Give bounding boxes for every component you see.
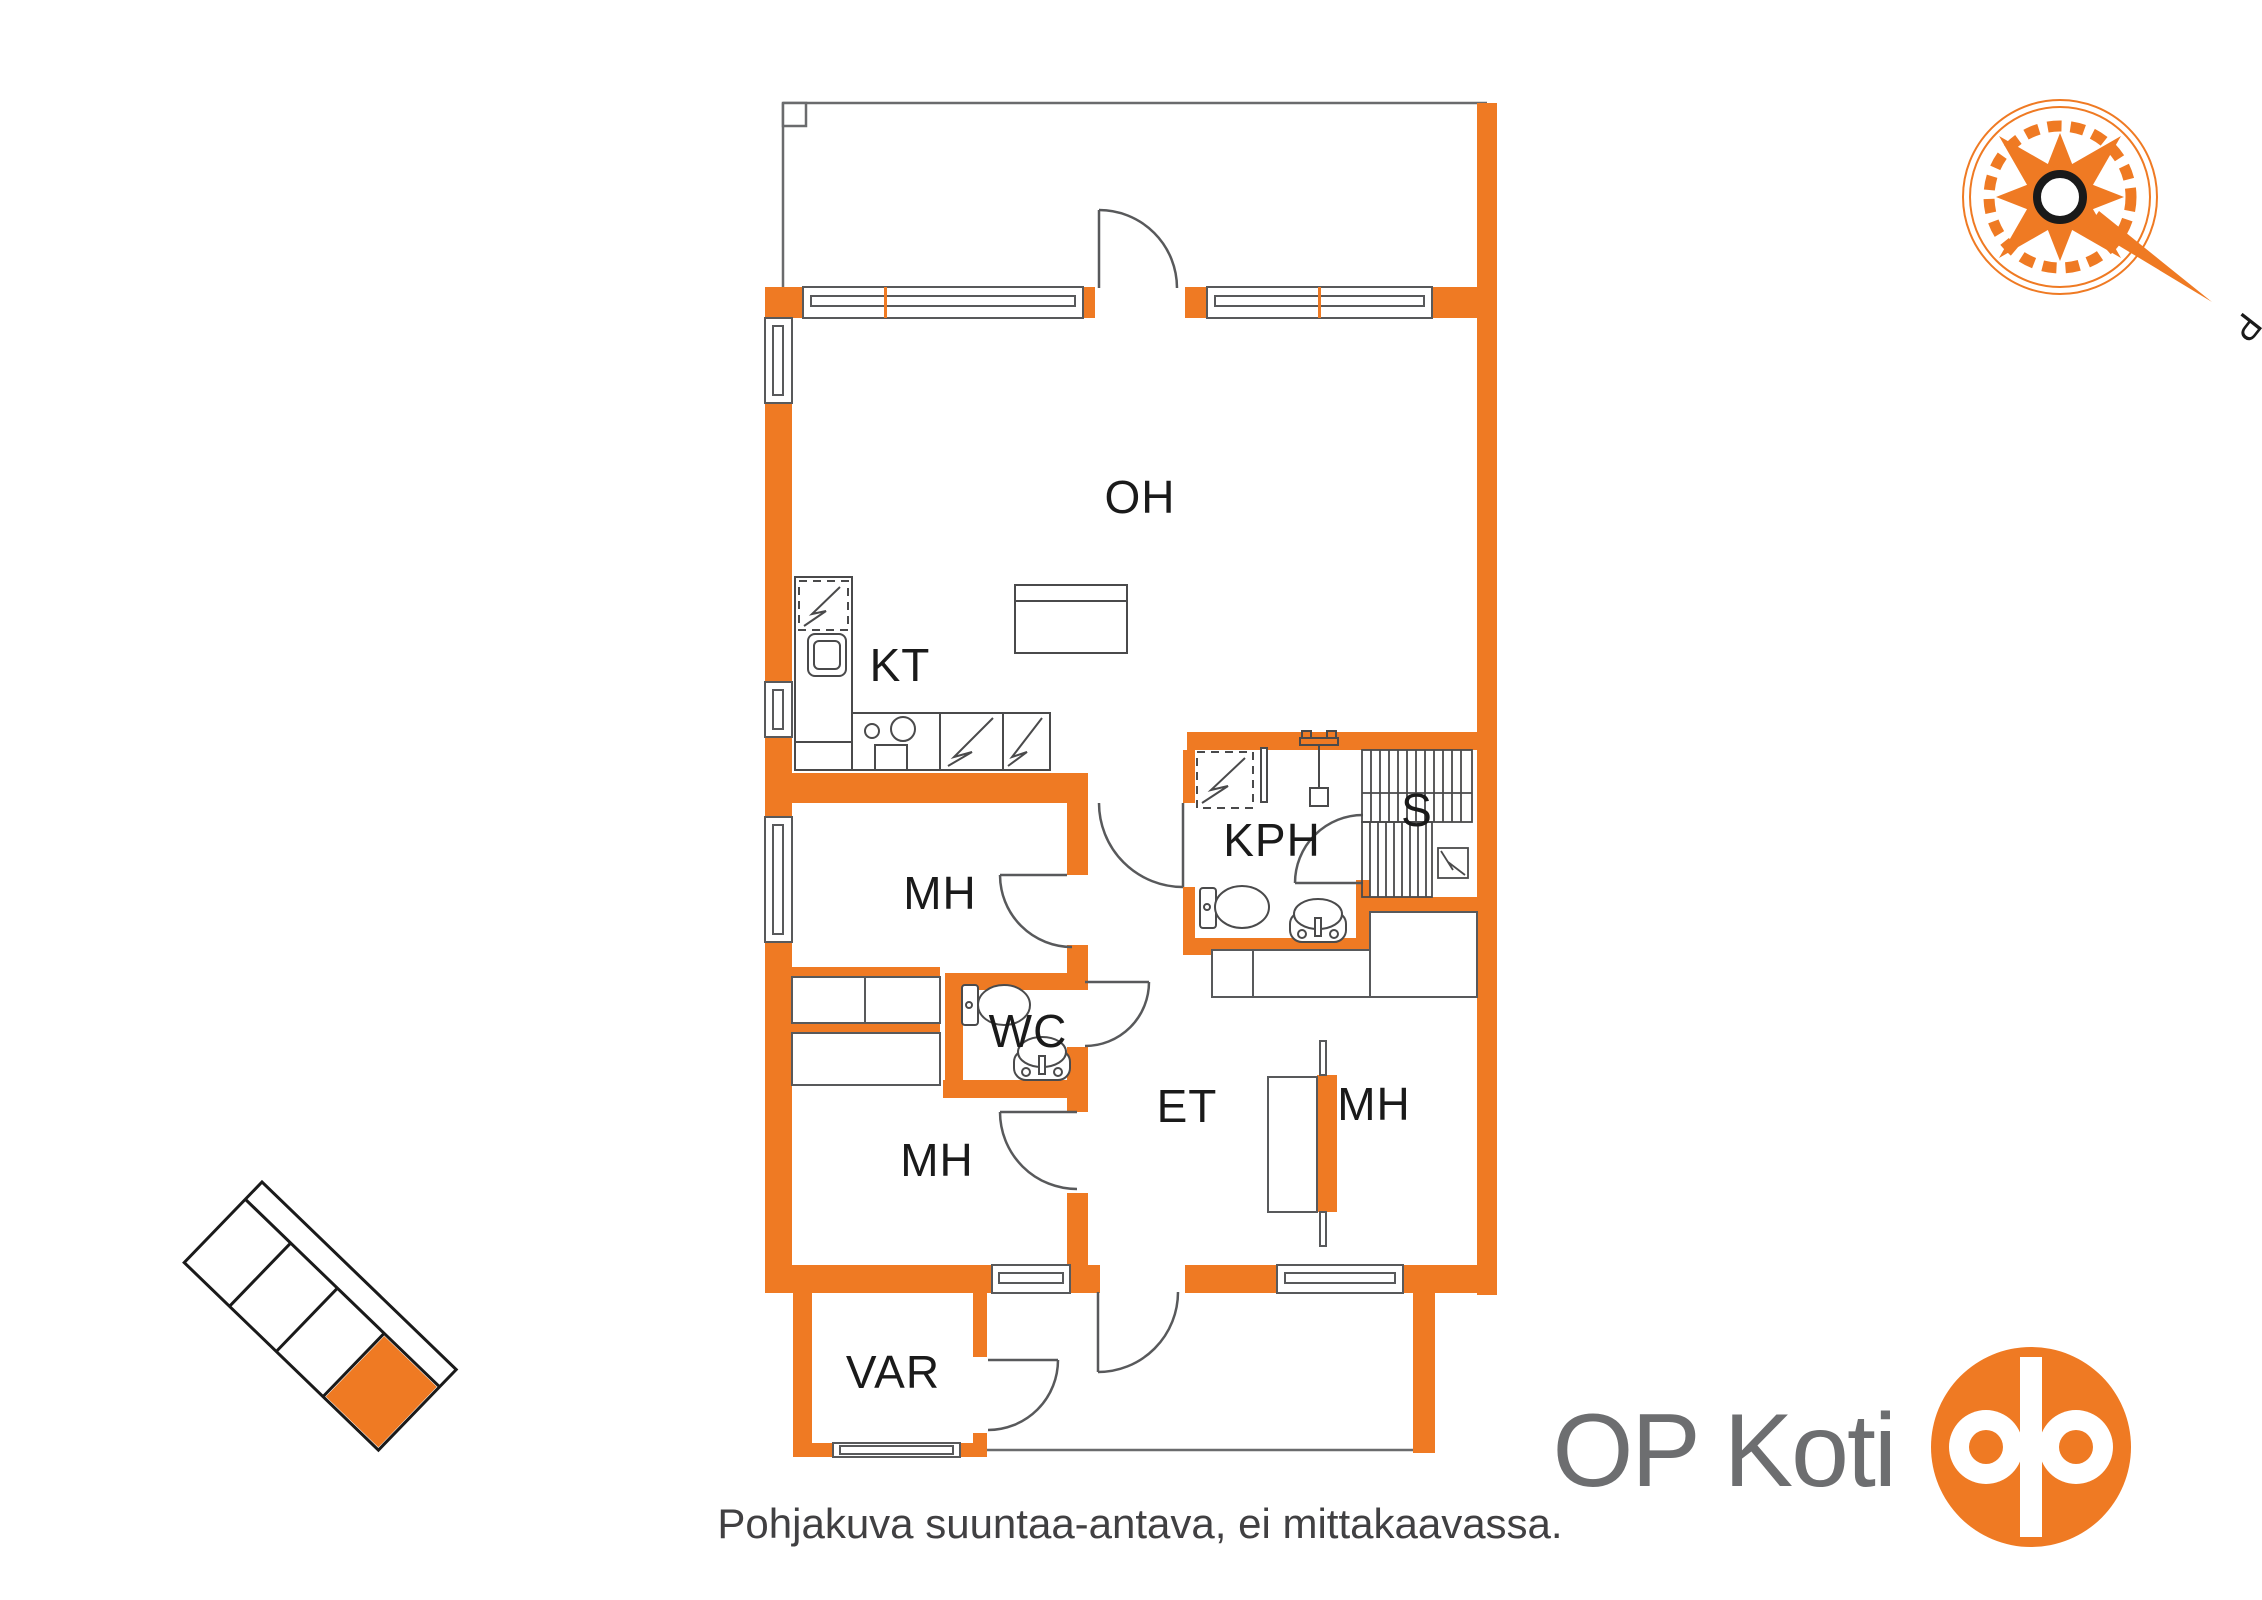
- window-top-b: [1207, 287, 1432, 318]
- balcony-door: [1099, 210, 1177, 288]
- room-label-mh1: MH: [903, 867, 977, 919]
- room-label-wc: WC: [989, 1005, 1068, 1057]
- window-left-bedroom: [765, 817, 792, 942]
- room-label-mh3: MH: [900, 1134, 974, 1186]
- footer-note: Pohjakuva suuntaa-antava, ei mittakaavas…: [717, 1500, 1562, 1547]
- sofa-table: [1015, 585, 1127, 653]
- room-label-kph: KPH: [1223, 814, 1321, 866]
- op-logo-icon: [1931, 1347, 2131, 1547]
- balcony-outline: [783, 103, 1487, 287]
- washing-machine-icon: [1197, 752, 1253, 808]
- closets: [792, 912, 1477, 1212]
- window-bottom-bedroom3: [992, 1265, 1070, 1293]
- north-label: P: [2223, 306, 2262, 350]
- brand-wordmark: OP Koti: [1553, 1393, 1895, 1509]
- room-label-oh: OH: [1105, 471, 1176, 523]
- wc-door: [1085, 982, 1149, 1046]
- entrance-door: [1098, 1292, 1178, 1372]
- window-storage: [833, 1443, 960, 1457]
- window-left-living: [765, 318, 792, 403]
- bedroom1-door: [1000, 875, 1072, 947]
- north-needle: [2088, 211, 2212, 302]
- bathroom-door: [1099, 803, 1183, 887]
- room-label-s: S: [1401, 784, 1433, 836]
- floor-plan-page: OH KT MH WC KPH S ET MH MH VAR P: [0, 0, 2262, 1600]
- compass-rose: P: [1963, 100, 2262, 350]
- storage-door: [988, 1360, 1058, 1430]
- sink-icon: [1290, 899, 1346, 942]
- op-koti-brand: OP Koti: [1553, 1347, 2131, 1547]
- room-label-mh2: MH: [1337, 1078, 1411, 1130]
- room-label-kt: KT: [870, 639, 931, 691]
- window-left-kitchen: [765, 682, 792, 737]
- toilet-icon: [1200, 886, 1269, 928]
- window-bottom-bedroom2: [1277, 1265, 1403, 1293]
- window-top-a: [803, 287, 1083, 318]
- room-label-var: VAR: [846, 1346, 940, 1398]
- room-label-et: ET: [1157, 1080, 1218, 1132]
- bedroom3-door: [1000, 1112, 1077, 1189]
- building-locator: [184, 1182, 456, 1450]
- kitchen-fixtures: [795, 577, 1127, 770]
- sauna-heater-icon: [1438, 848, 1468, 878]
